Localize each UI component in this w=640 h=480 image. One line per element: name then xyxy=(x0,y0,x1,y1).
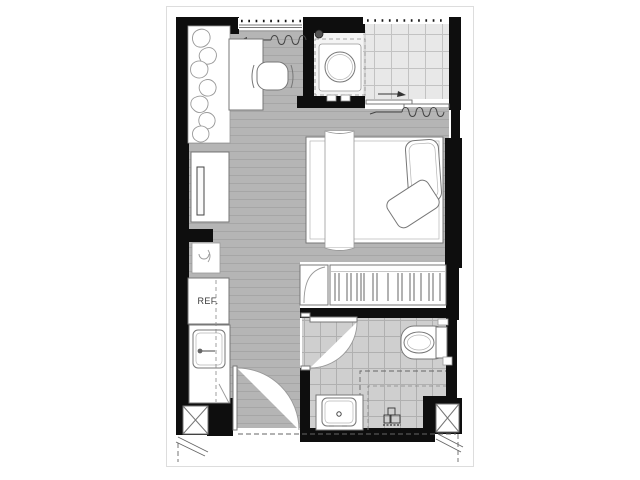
drain-pipe-icon xyxy=(315,30,323,38)
tv-panel xyxy=(197,167,204,215)
floor-plan-image: REF. xyxy=(0,0,640,480)
wall-right-upper xyxy=(449,17,461,110)
toilet-side-box xyxy=(443,357,452,365)
neighbor-wall-diagonals-right xyxy=(436,434,463,452)
wall-entry-left xyxy=(207,398,233,436)
refrigerator-label: REF. xyxy=(197,296,218,306)
wall-bathroom-left-lower xyxy=(300,368,310,430)
door-jamb-bottom xyxy=(301,366,310,370)
wardrobe-row xyxy=(300,265,446,305)
blanket-runner xyxy=(325,131,354,248)
wall-left xyxy=(176,17,189,407)
bathroom-door-leaf xyxy=(310,317,357,322)
column-x-marker-left xyxy=(183,406,208,434)
neighbor-wall-diagonals-left xyxy=(176,437,208,456)
washer-foot-left xyxy=(327,95,336,101)
bed-area xyxy=(306,131,443,251)
wall-right-thin xyxy=(451,108,460,140)
toilet-tank xyxy=(436,327,447,358)
kitchen-counter xyxy=(189,325,230,403)
faucet-icon xyxy=(198,349,203,354)
chair-seat xyxy=(257,62,288,90)
wall-right-wardrobe xyxy=(446,266,459,320)
entry-door-leaf xyxy=(233,366,237,430)
washer-foot-right xyxy=(341,95,350,101)
wall-right-pillar xyxy=(445,138,462,268)
kitchen-strip: REF. xyxy=(188,152,230,403)
door-jamb-top xyxy=(301,313,310,317)
balcony-tile-floor xyxy=(363,22,449,106)
wall-kitchen-stub xyxy=(176,229,213,242)
paper-holder-icon xyxy=(438,319,448,325)
sliding-window-panel-1 xyxy=(366,100,412,104)
column-x-marker-right xyxy=(436,404,459,432)
floor-plan-screenshot: REF. xyxy=(0,0,640,480)
sliding-window-panel-2 xyxy=(404,104,449,108)
vanity-sink xyxy=(316,395,363,430)
